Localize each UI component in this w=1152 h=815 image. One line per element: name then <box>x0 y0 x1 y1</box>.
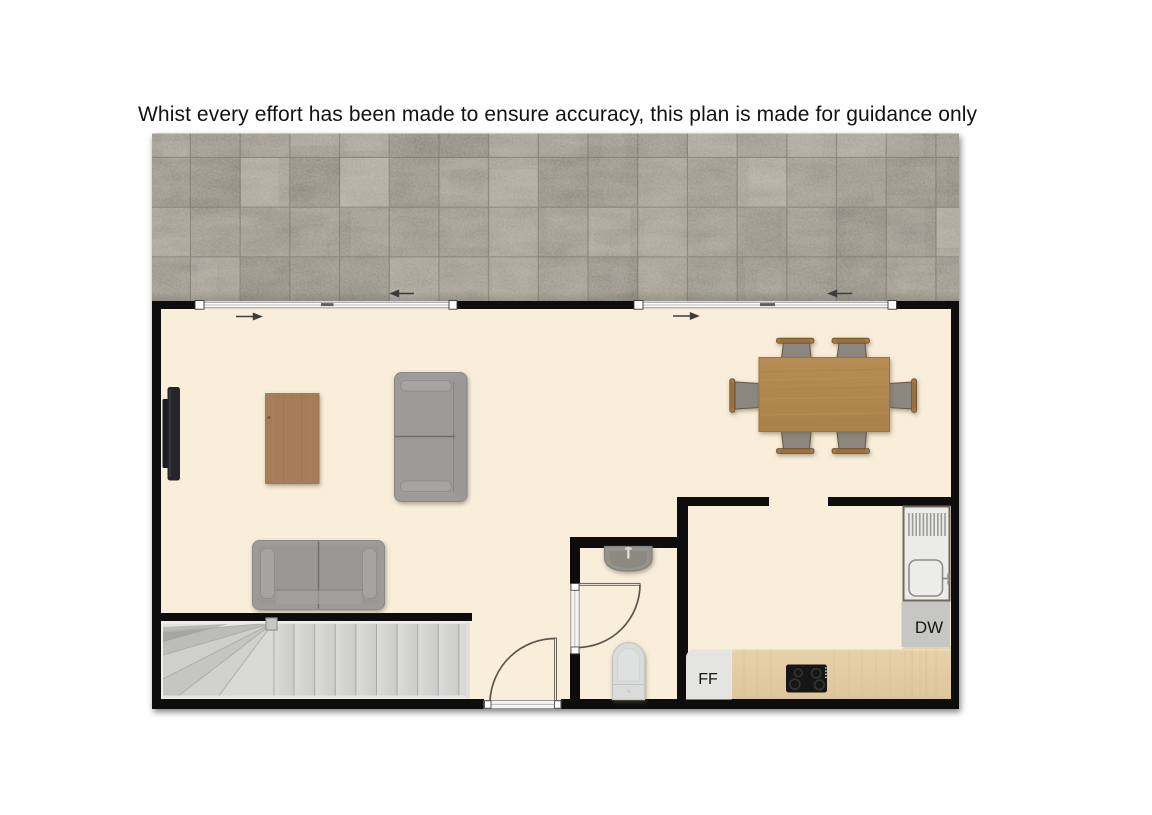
svg-text:DW: DW <box>915 618 943 637</box>
svg-text:FF: FF <box>698 671 718 688</box>
